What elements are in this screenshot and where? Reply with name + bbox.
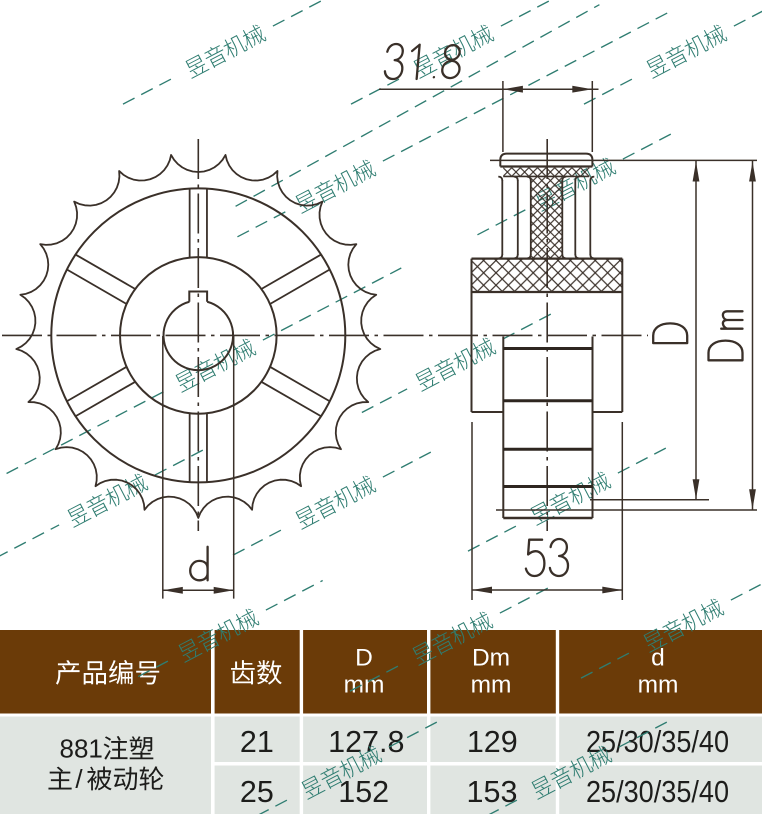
svg-text:881: 881 — [60, 734, 103, 764]
svg-text:/: / — [75, 764, 83, 794]
svg-text:mm: mm — [638, 672, 679, 699]
svg-text:25: 25 — [240, 775, 274, 809]
svg-text:129: 129 — [467, 725, 518, 759]
svg-text:21: 21 — [240, 725, 274, 759]
svg-text:152: 152 — [338, 775, 389, 809]
svg-text:127.8: 127.8 — [328, 725, 404, 759]
svg-text:Dm: Dm — [472, 645, 510, 672]
svg-text:mm: mm — [344, 672, 385, 699]
svg-text:25/30/35/40: 25/30/35/40 — [586, 775, 729, 809]
svg-text:D: D — [355, 645, 373, 672]
svg-text:mm: mm — [471, 672, 512, 699]
